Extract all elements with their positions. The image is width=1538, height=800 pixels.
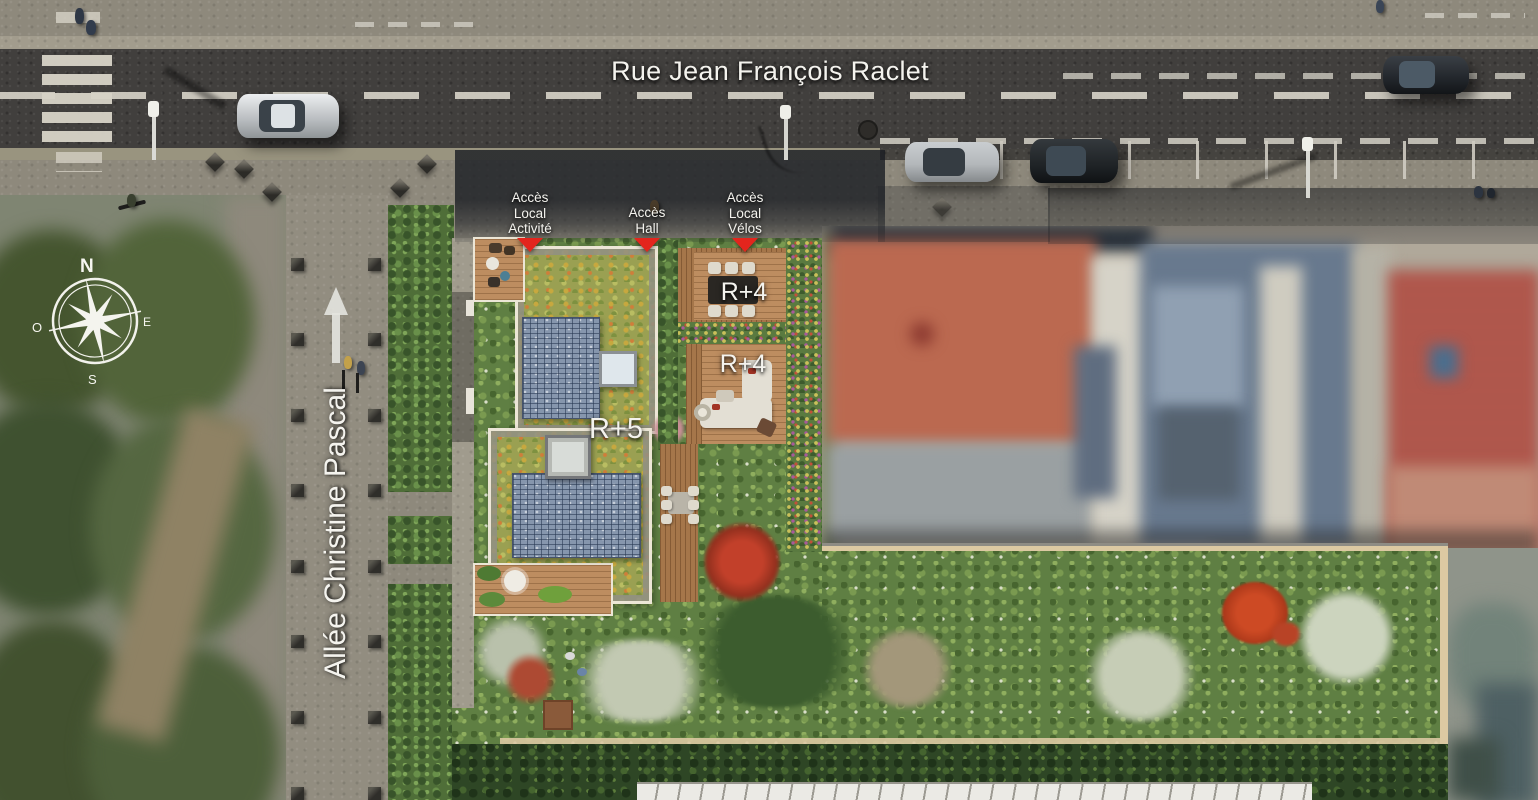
pedestrian <box>86 20 96 35</box>
street-lamp-head <box>148 101 159 117</box>
lounge-chair <box>694 404 711 421</box>
access-label-hall: Accès Hall <box>599 205 695 236</box>
compass-east-label: E <box>143 315 151 329</box>
access-label-activity: Accès Local Activité <box>482 190 578 237</box>
direction-arrow-shaft <box>332 313 340 363</box>
terrace-pouf <box>500 271 510 281</box>
bollard <box>368 711 381 724</box>
person-on-lawn <box>565 652 575 660</box>
cyclist <box>127 194 136 207</box>
parking-separator <box>1472 141 1475 179</box>
crossing-patch <box>56 152 102 172</box>
bollard <box>368 409 381 422</box>
bollard <box>368 787 381 800</box>
blurred-blue-spot <box>1430 346 1458 378</box>
boundary-east <box>1440 546 1448 744</box>
top-sidewalk <box>0 0 1538 40</box>
bollard <box>368 258 381 271</box>
flower-border-east <box>786 240 822 552</box>
neighbor-buildings-blurred <box>822 226 1538 556</box>
garden-planter <box>543 700 573 730</box>
access-line: Local <box>482 206 578 222</box>
solar-panel-array <box>512 473 641 558</box>
access-line: Local <box>697 206 793 222</box>
car-glass <box>1046 146 1086 176</box>
bollard <box>368 560 381 573</box>
coffee-table <box>716 390 734 402</box>
blurred-roof-units <box>1158 408 1240 500</box>
terrace-plant <box>538 586 572 603</box>
zebra-crossing <box>42 55 112 150</box>
pedestrian <box>1474 186 1483 198</box>
pedestrian <box>1376 0 1384 13</box>
blurred-dark-wing <box>1074 346 1116 498</box>
terrace-table <box>486 257 499 270</box>
compass-west-label: O <box>32 320 42 335</box>
chair <box>708 262 721 274</box>
hedge-gap-path <box>388 564 454 584</box>
access-label-bikes: Accès Local Vélos <box>697 190 793 237</box>
facade-door-mark <box>466 300 474 316</box>
parking-separator <box>1403 141 1406 179</box>
compass-north-label: N <box>80 256 94 277</box>
neighbor-court-blurred <box>1448 548 1538 800</box>
terrace-round-table <box>504 570 526 592</box>
green-border <box>658 240 678 450</box>
access-line: Vélos <box>697 221 793 237</box>
compass-south-label: S <box>88 372 97 387</box>
terrace-furniture <box>488 277 500 287</box>
terrace-furniture <box>504 246 515 255</box>
blurred-dark-patch <box>1448 738 1500 800</box>
parked-car-dark <box>1030 139 1118 183</box>
sidewalk-ticks <box>355 22 485 27</box>
chair <box>661 500 672 510</box>
red-arrow-down-icon <box>634 238 660 252</box>
blurred-red-roof <box>828 238 1096 444</box>
blurred-roof-vent <box>910 322 934 346</box>
terrace-plant <box>477 566 501 581</box>
blurred-roof-panel <box>1152 286 1244 408</box>
red-arrow-down-icon <box>517 238 543 252</box>
chair <box>742 262 755 274</box>
chair <box>688 486 699 496</box>
manhole-cover <box>858 120 878 140</box>
boundary-north <box>822 546 1448 551</box>
chair <box>688 500 699 510</box>
bollard <box>291 333 304 346</box>
bollard <box>291 258 304 271</box>
parked-car-silver <box>905 142 999 182</box>
building-shadow-east <box>1048 188 1538 244</box>
car-roof <box>271 104 295 128</box>
white-flowering-bush <box>560 640 722 722</box>
chair <box>661 514 672 524</box>
parking-separator <box>1128 141 1131 179</box>
skylight <box>599 351 637 387</box>
access-line: Accès <box>599 205 695 221</box>
terrace-south-edge <box>686 344 702 444</box>
building-shadow-faint <box>878 186 1050 242</box>
bollard <box>291 711 304 724</box>
access-line: Accès <box>697 190 793 206</box>
car-glass <box>1399 61 1435 88</box>
bollard <box>291 560 304 573</box>
blurred-gray-wing <box>828 444 1096 544</box>
bollard <box>368 635 381 648</box>
dry-bush <box>856 630 958 708</box>
bollard <box>291 787 304 800</box>
person-on-lawn <box>577 668 587 676</box>
access-line: Accès <box>482 190 578 206</box>
bollard <box>291 484 304 497</box>
blurred-light-strip <box>1352 246 1392 546</box>
pedestrian <box>75 8 84 24</box>
terrace-plant <box>479 592 505 607</box>
flower-bed <box>676 322 790 346</box>
compass-rose-icon: N E S O <box>30 252 160 388</box>
road-center-dashes <box>0 92 1538 99</box>
bollard <box>368 333 381 346</box>
red-flower-patch <box>505 652 555 706</box>
parking-separator <box>1196 141 1199 179</box>
solar-panel-array <box>522 317 600 419</box>
chair <box>725 262 738 274</box>
hedge-gap-path <box>388 492 454 516</box>
aerial-site-plan: Accès Local Activité Accès Hall Accès Lo… <box>0 0 1538 800</box>
blurred-white-court <box>1260 266 1302 546</box>
red-cushion <box>712 404 720 410</box>
sidewalk-ticks <box>1425 13 1525 18</box>
driving-car-dark <box>1383 56 1469 94</box>
street-name-top: Rue Jean François Raclet <box>560 56 980 87</box>
level-label-r4-south: R+4 <box>708 350 778 379</box>
car-glass <box>923 148 965 176</box>
white-flowering-bush <box>1298 588 1396 686</box>
terrace-furniture <box>489 243 502 253</box>
pedestrian <box>1487 188 1495 198</box>
street-lamp-head <box>780 105 791 119</box>
bollard <box>291 635 304 648</box>
parking-separator <box>1000 141 1003 179</box>
red-arrow-down-icon <box>732 238 758 252</box>
bicycle <box>356 373 359 393</box>
white-flowering-bush <box>1080 630 1202 722</box>
street-lamp-head <box>1302 137 1313 151</box>
south-rooftop-edge <box>637 782 1312 800</box>
direction-arrow-icon <box>324 287 348 315</box>
pedestrian-allee <box>344 356 352 369</box>
level-label-r5: R+5 <box>576 413 656 446</box>
access-line: Hall <box>599 221 695 237</box>
chair <box>661 486 672 496</box>
parking-separator <box>1334 141 1337 179</box>
facade-door-mark <box>466 388 474 414</box>
red-flowering-tree <box>704 522 780 602</box>
bollard <box>368 484 381 497</box>
chair <box>688 514 699 524</box>
level-label-r4-north: R+4 <box>709 278 779 307</box>
access-line: Activité <box>482 221 578 237</box>
red-bush-small <box>1272 622 1300 646</box>
driving-car-silver <box>237 94 339 138</box>
street-name-left: Allée Christine Pascal <box>319 383 355 683</box>
bollard <box>291 409 304 422</box>
